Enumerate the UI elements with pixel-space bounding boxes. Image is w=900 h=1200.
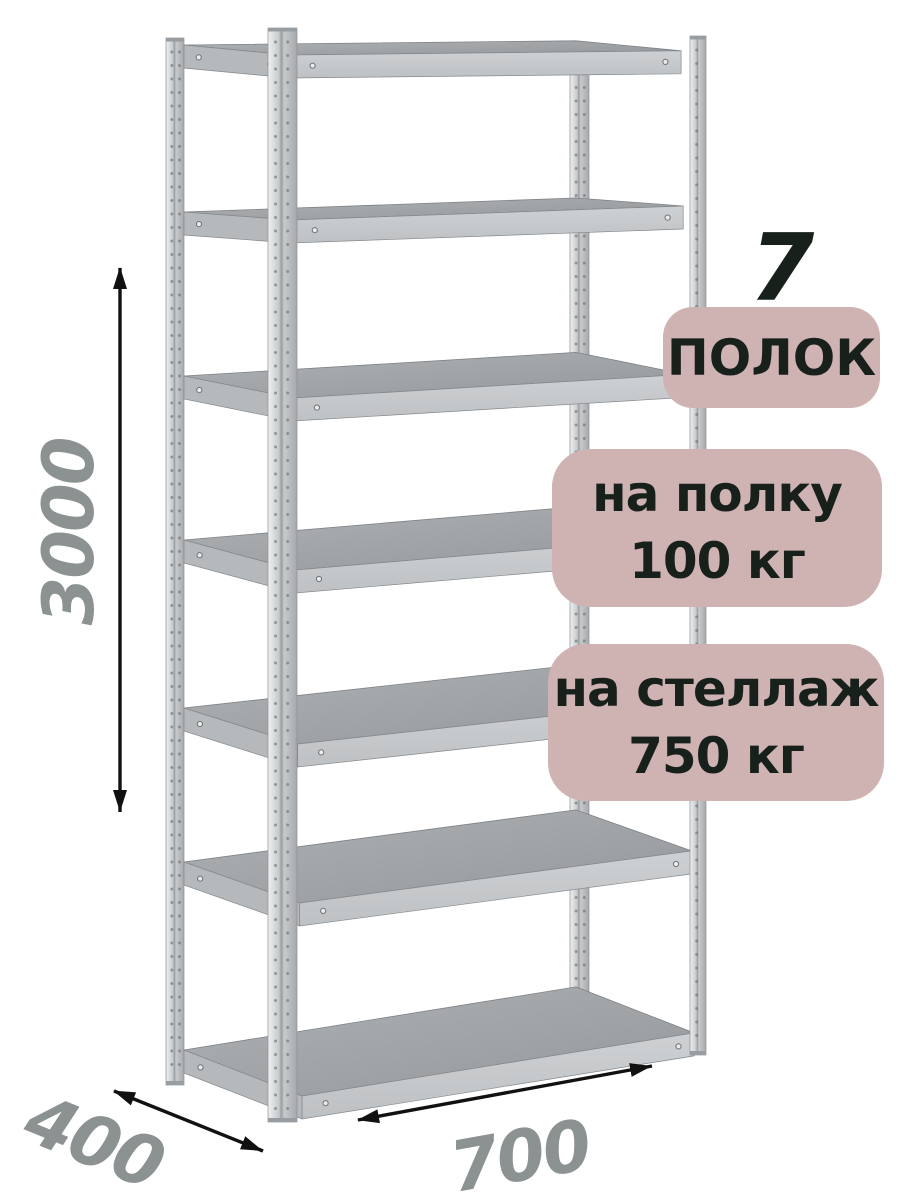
shelf-1 xyxy=(184,41,681,78)
rack-load-line2: 750 кг xyxy=(628,723,804,790)
shelf-count-number: 7 xyxy=(712,218,852,318)
shelf-load-line2: 100 кг xyxy=(629,528,805,595)
shelf-3 xyxy=(184,352,685,421)
shelf-2 xyxy=(184,198,683,243)
height-dimension-label: 3000 xyxy=(28,438,110,625)
shelf-count-badge: ПОЛОК xyxy=(663,307,880,408)
upright-post-front-left xyxy=(268,28,297,1122)
shelf-load-badge: на полку 100 кг xyxy=(552,449,882,607)
rack-load-badge: на стеллаж 750 кг xyxy=(548,644,884,801)
width-dimension-label: 700 xyxy=(444,1104,597,1200)
depth-dimension-label: 400 xyxy=(13,1077,175,1200)
depth-dimension: 400 xyxy=(13,1077,263,1200)
shelf-load-line1: на полку xyxy=(592,461,842,528)
height-dimension: 3000 xyxy=(28,268,120,812)
upright-post-back-left xyxy=(166,38,184,1085)
shelf-6 xyxy=(184,810,692,926)
rack-load-line1: на стеллаж xyxy=(554,656,879,723)
shelf-7 xyxy=(184,987,694,1119)
product-illustration: 3000 400 700 7 ПОЛОК на полку 100 кг на … xyxy=(0,0,900,1200)
shelf-count-badge-label: ПОЛОК xyxy=(667,329,876,387)
